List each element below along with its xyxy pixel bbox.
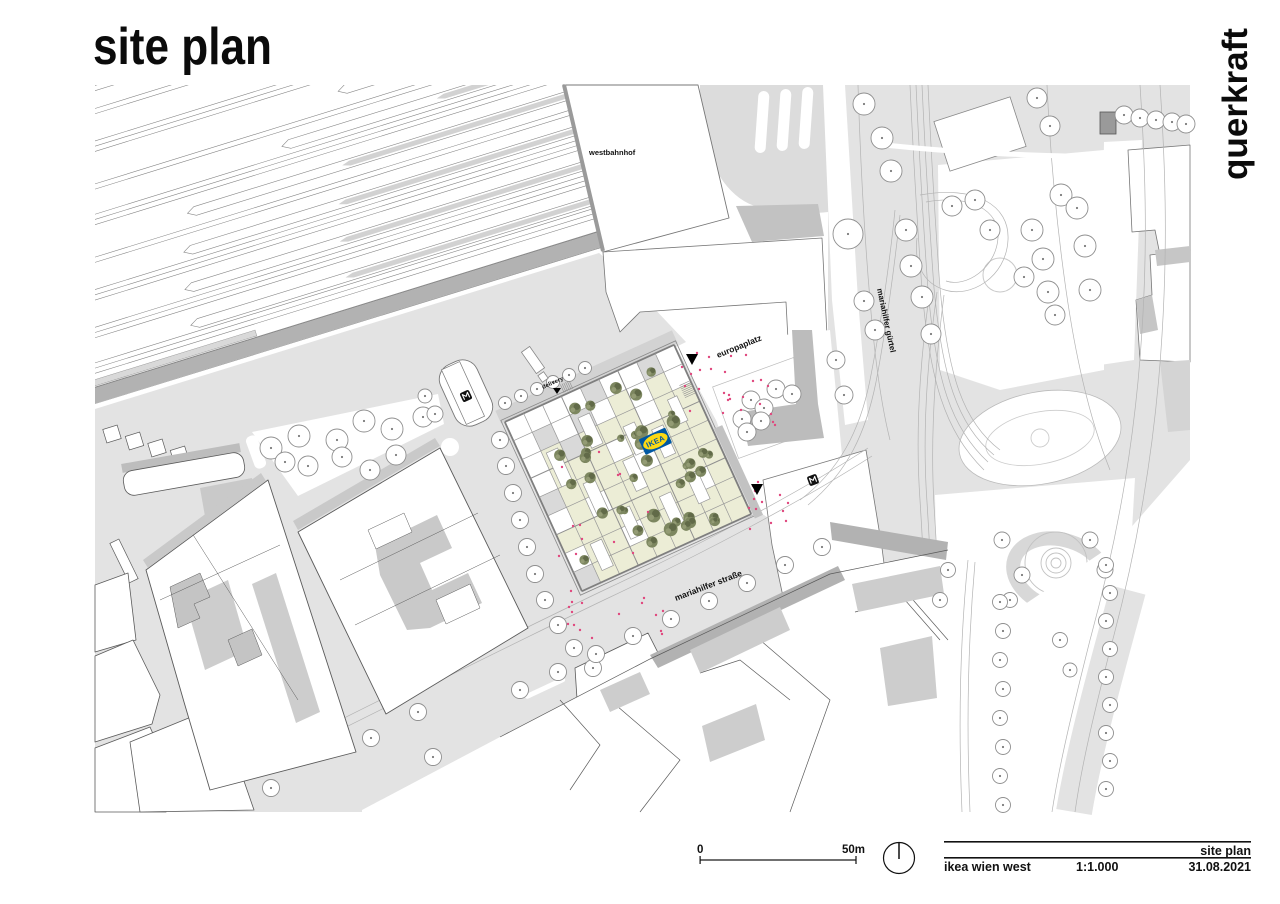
svg-text:westbahnhof: westbahnhof	[588, 148, 636, 157]
svg-text:querkraft: querkraft	[1216, 28, 1255, 180]
svg-text:0: 0	[697, 844, 703, 856]
svg-text:50m: 50m	[842, 844, 865, 856]
svg-text:1:1.000: 1:1.000	[1076, 860, 1118, 874]
svg-text:31.08.2021: 31.08.2021	[1188, 860, 1251, 874]
svg-text:site plan: site plan	[93, 18, 272, 76]
svg-text:site plan: site plan	[1200, 844, 1251, 858]
svg-text:ikea wien west: ikea wien west	[944, 860, 1032, 874]
